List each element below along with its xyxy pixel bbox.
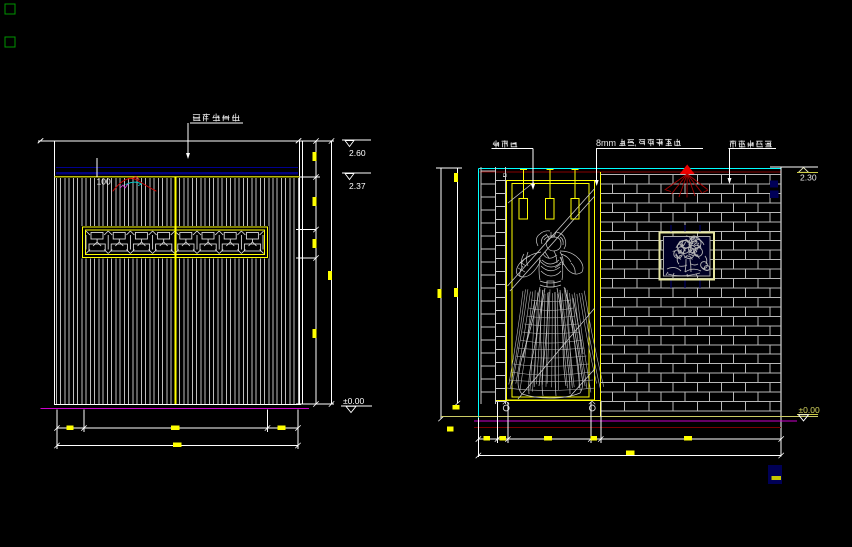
svg-text:±0.00: ±0.00 <box>799 405 820 415</box>
svg-text:8mm: 8mm <box>596 138 616 148</box>
svg-text:2.60: 2.60 <box>349 148 366 158</box>
svg-text:2.37: 2.37 <box>349 181 366 191</box>
svg-text:100: 100 <box>97 177 111 187</box>
svg-text:2.30: 2.30 <box>800 173 817 183</box>
svg-text:±0.00: ±0.00 <box>343 396 364 406</box>
svg-text:,: , <box>635 139 637 148</box>
